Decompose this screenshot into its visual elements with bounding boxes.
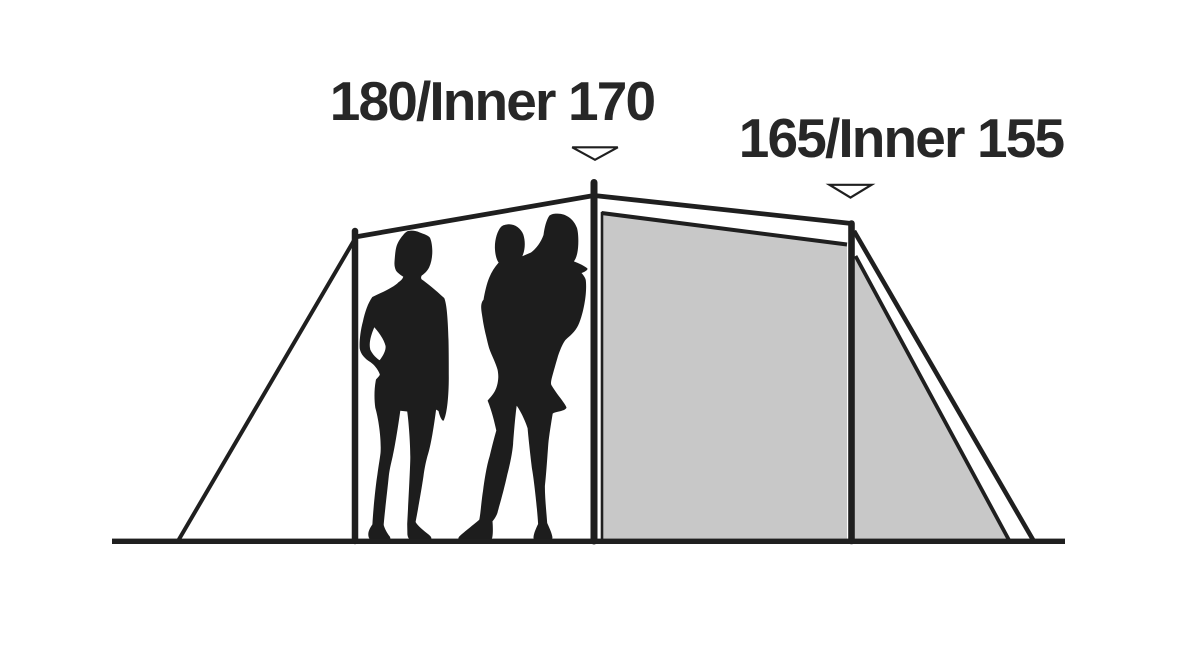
svg-text:180/Inner 170: 180/Inner 170 — [330, 70, 655, 132]
svg-text:165/Inner 155: 165/Inner 155 — [739, 107, 1065, 169]
